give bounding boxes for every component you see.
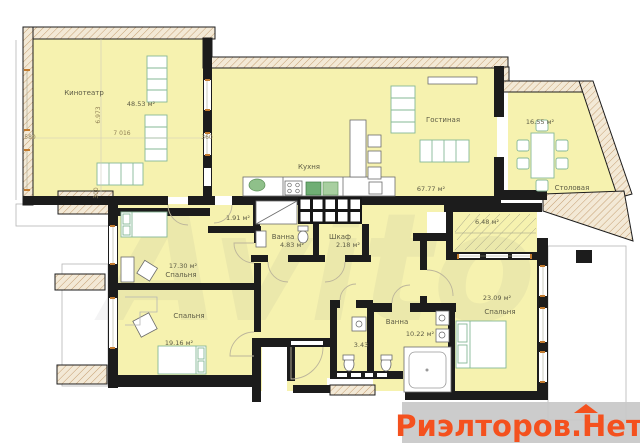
floor-plan-svg: Avito [0, 0, 640, 448]
balcony-pier-bottom [57, 365, 107, 384]
home-theater-label: Кинотеатр [64, 89, 104, 97]
bedroom2-area: 19.16 м² [165, 339, 194, 347]
bedroom3-bed [456, 321, 506, 368]
dim-height: 6.973 [95, 106, 102, 123]
bedroom2-bed [158, 346, 206, 374]
living-label: Гостиная [426, 116, 460, 124]
theater-sofa-1 [147, 56, 167, 102]
terrace-pier [576, 250, 592, 263]
living-sofa-horizontal [420, 140, 469, 162]
dim-left: 580 [24, 134, 36, 141]
wardrobe-label: Шкаф [329, 233, 351, 241]
theater-sofa-3 [97, 163, 143, 185]
bedroom2-label: Спальня [173, 312, 204, 320]
balcony-pier-top [55, 274, 105, 290]
bedroom1-area: 17.30 м² [169, 262, 198, 270]
dim-right: 360 [201, 134, 213, 141]
bedroom1-label: Спальня [165, 271, 196, 279]
living-area: 67.77 м² [417, 185, 446, 193]
home-theater-area: 48.53 м² [127, 100, 156, 108]
living-sofa-vertical [391, 86, 415, 133]
bath-big-label: Ванна [386, 318, 409, 326]
dim-bottom: 300 [93, 187, 100, 199]
bedroom1-desk [121, 257, 134, 282]
bath-small-label: Ванна [272, 233, 295, 241]
brand-watermark: Риэлторов.Нет [395, 402, 640, 443]
dim-width: 7 016 [113, 130, 130, 137]
bedroom3-label: Спальня [484, 308, 515, 316]
bath-small-area: 4.83 м² [280, 241, 304, 249]
kitchen-plant [249, 179, 265, 191]
kitchen-label: Кухня [298, 163, 320, 171]
floor-plan-screenshot: Avito [0, 0, 640, 448]
wardrobe-area: 2.18 м² [336, 241, 360, 249]
loggia-area: 6.48 м² [475, 218, 499, 226]
dining-label: Столовая [555, 184, 590, 192]
bath-big-area: 10.22 м² [406, 330, 435, 338]
bedroom3-area: 23.09 м² [483, 294, 512, 302]
wc-area: 3.43 [354, 341, 368, 349]
pantry-area: 1.91 м² [226, 214, 250, 222]
bedroom1-bed [121, 212, 167, 237]
wardrobe-grid [298, 197, 362, 224]
brand-text: Риэлторов.Нет [395, 409, 640, 443]
living-tv-stand [428, 77, 477, 84]
kitchen-stove [285, 181, 302, 195]
dining-area: 16.55 м² [526, 118, 555, 126]
